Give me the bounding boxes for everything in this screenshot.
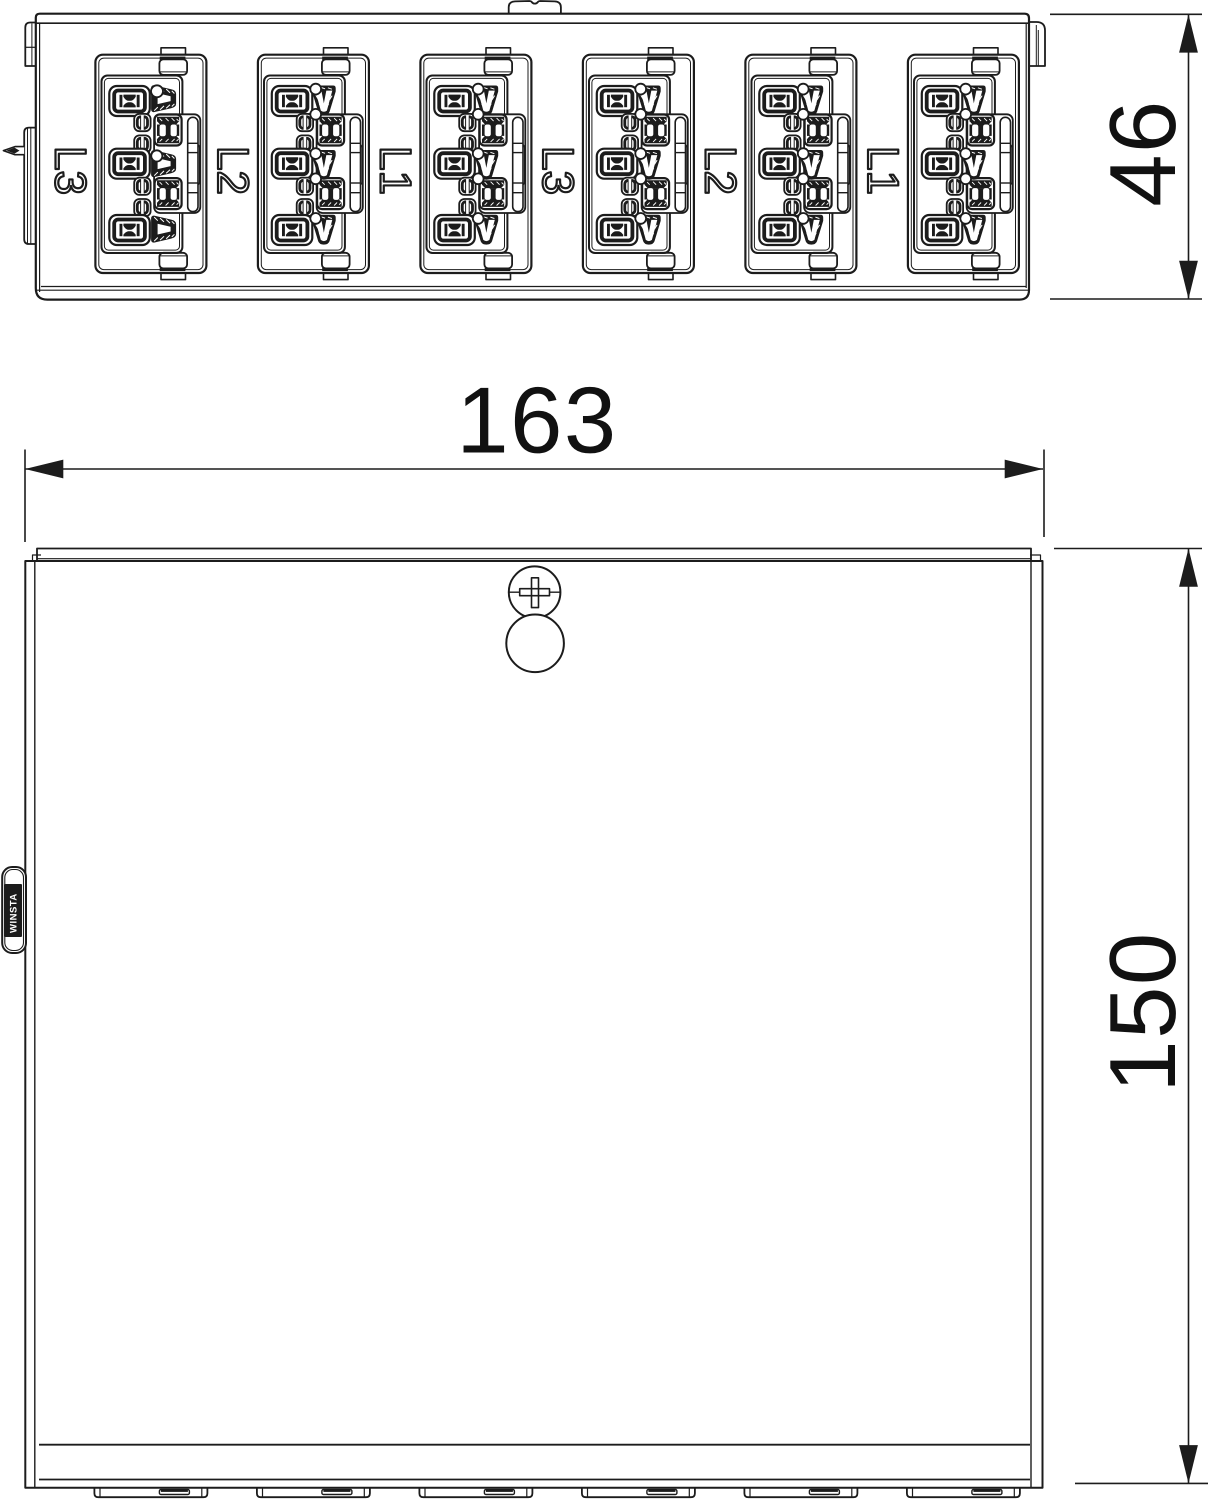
svg-text:150: 150 (1090, 931, 1195, 1092)
svg-text:L3: L3 (46, 146, 95, 195)
svg-text:163: 163 (456, 368, 617, 473)
svg-text:L3: L3 (533, 146, 582, 195)
svg-text:L2: L2 (208, 146, 257, 195)
svg-text:46: 46 (1090, 99, 1195, 207)
svg-text:L1: L1 (858, 146, 907, 195)
svg-text:L1: L1 (371, 146, 420, 195)
svg-text:WINSTA: WINSTA (9, 893, 20, 933)
svg-text:L2: L2 (696, 146, 745, 195)
